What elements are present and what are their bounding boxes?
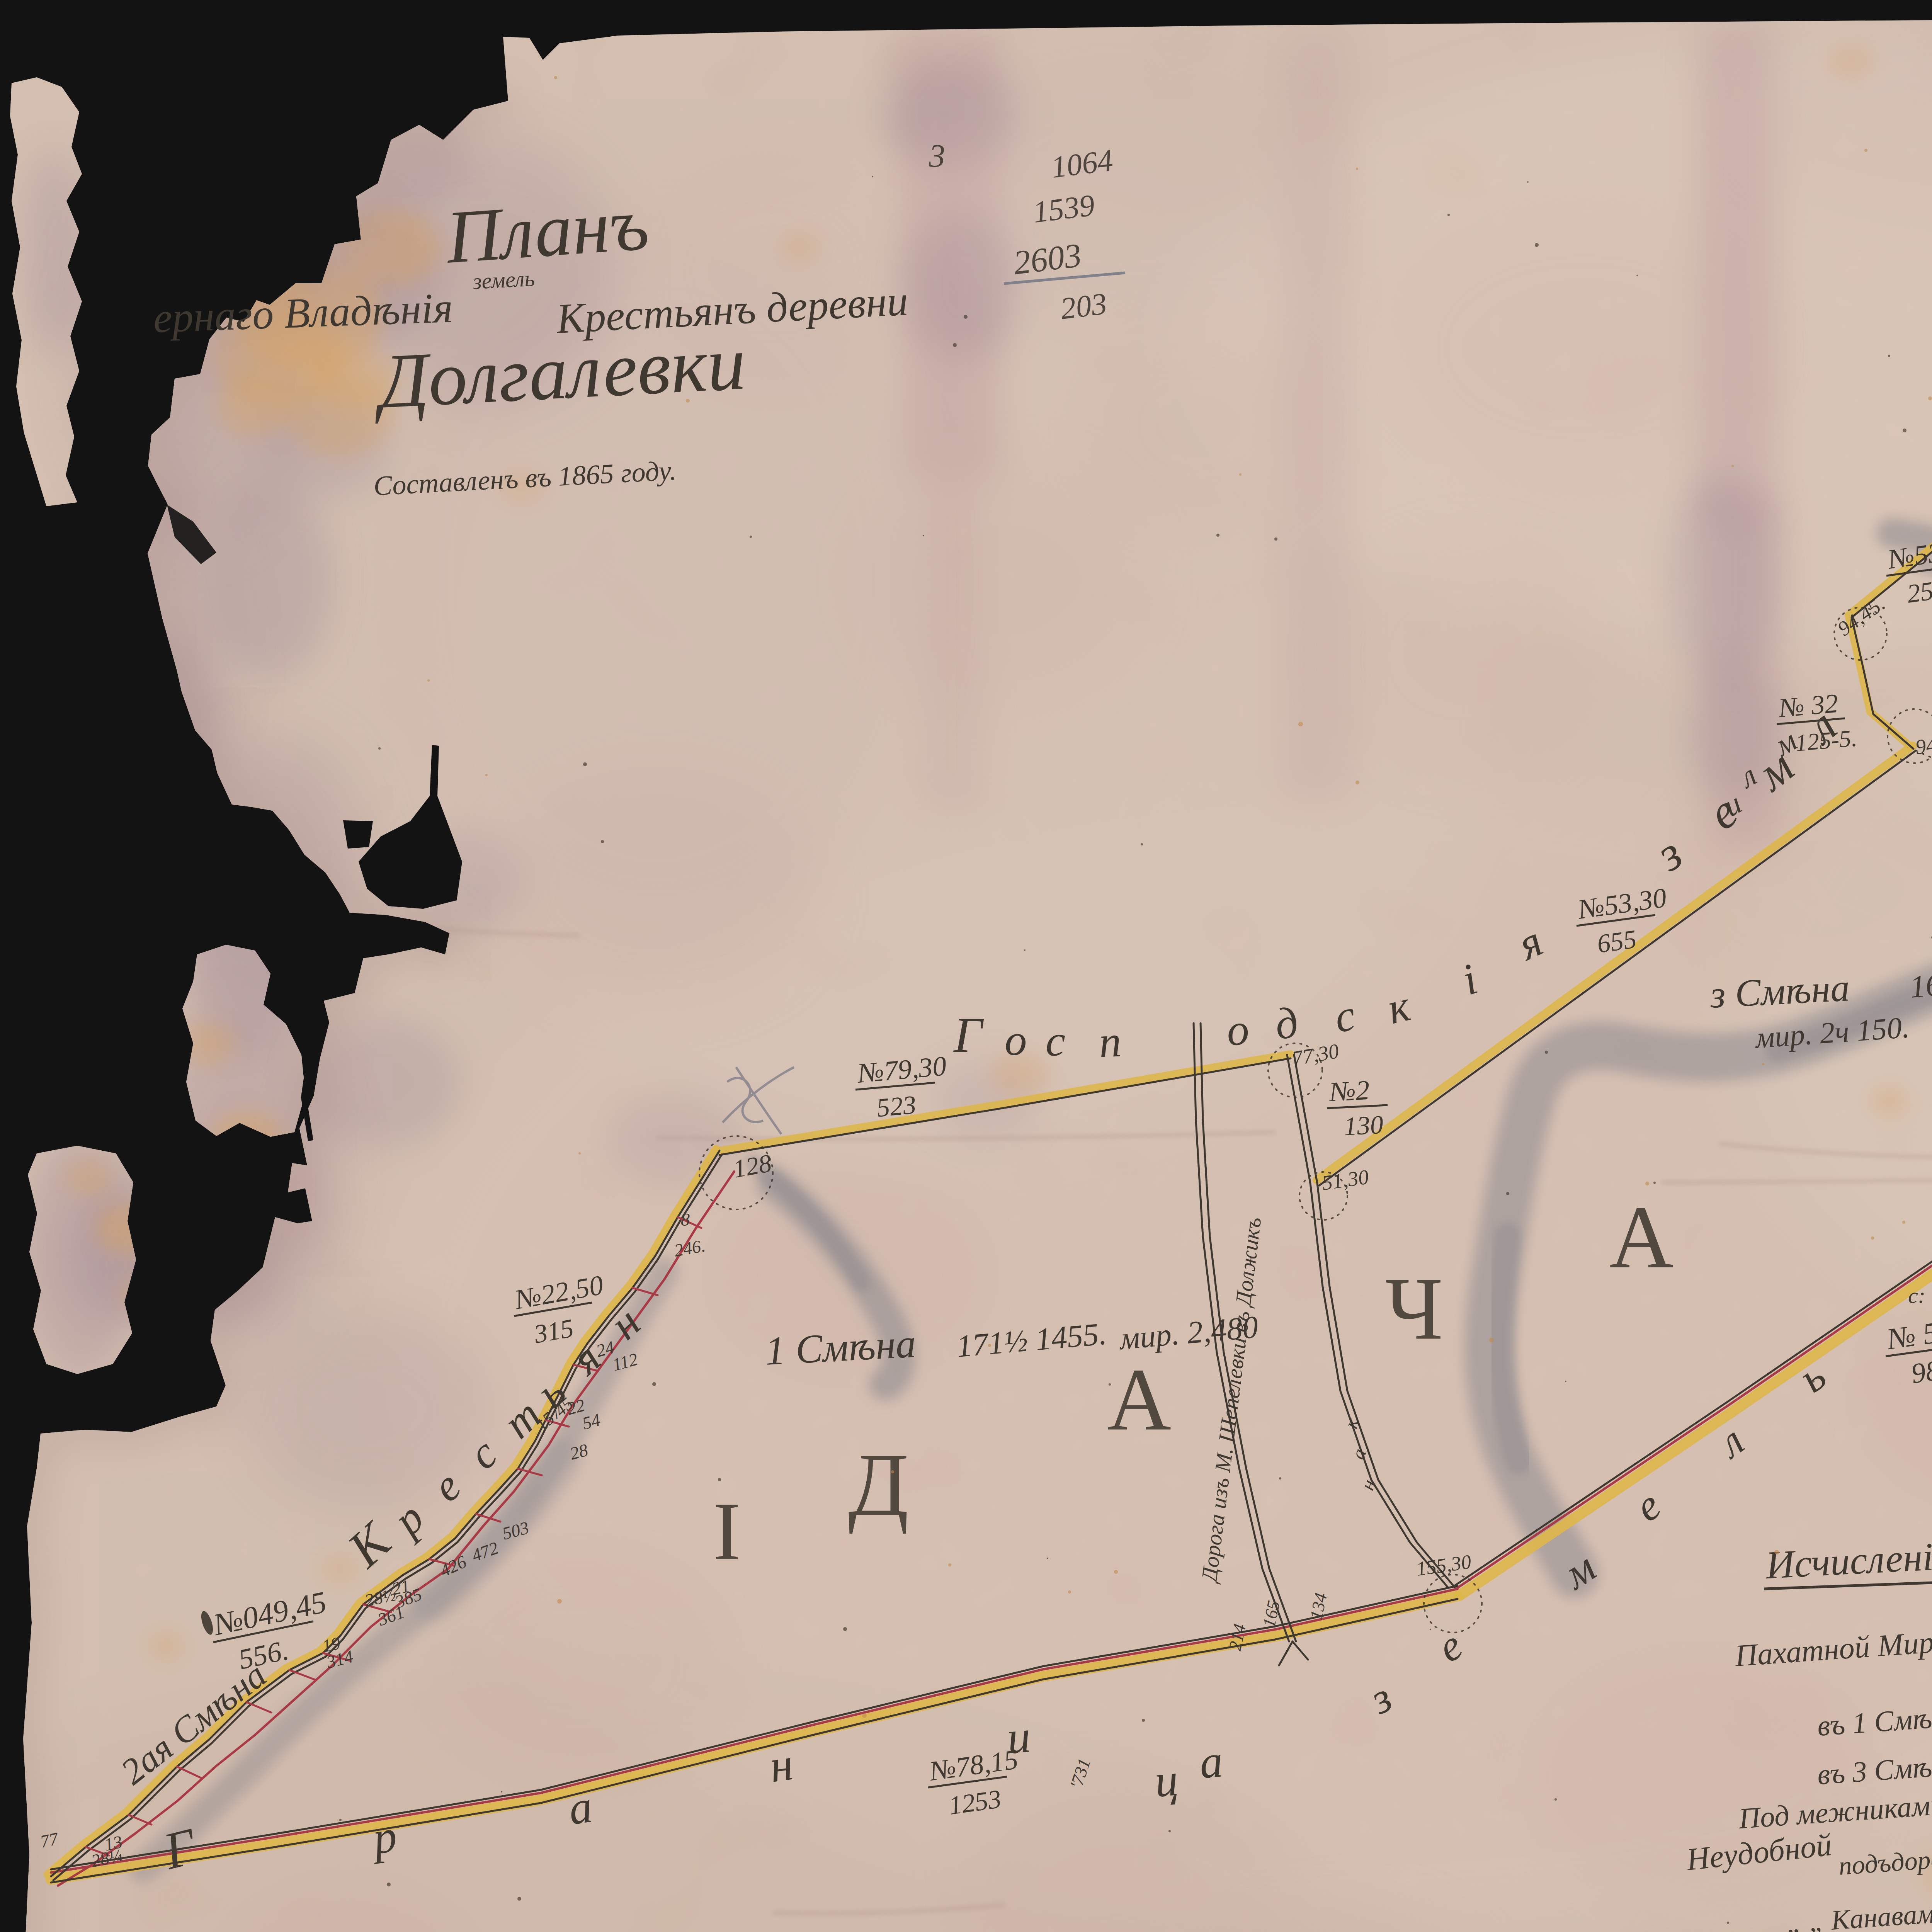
svg-text:о: о xyxy=(1225,1004,1251,1055)
svg-text:ц: ц xyxy=(1153,1753,1180,1807)
svg-text:989: 989 xyxy=(1909,1352,1932,1389)
svg-text:130: 130 xyxy=(1343,1110,1384,1141)
svg-text:І: І xyxy=(713,1485,741,1577)
svg-text:п: п xyxy=(1098,1017,1122,1067)
svg-text:а: а xyxy=(1197,1735,1225,1788)
svg-text:Планъ: Планъ xyxy=(443,182,651,279)
svg-text:№2: №2 xyxy=(1328,1075,1371,1107)
svg-text:3: 3 xyxy=(929,138,945,174)
svg-text:Ч: Ч xyxy=(1385,1260,1443,1358)
svg-text:Г: Г xyxy=(953,1007,984,1063)
svg-text:250: 250 xyxy=(1905,574,1932,608)
svg-text:з Смѣна: з Смѣна xyxy=(1708,966,1850,1016)
svg-text:с: с xyxy=(1046,1016,1065,1065)
svg-text:8: 8 xyxy=(681,1210,690,1230)
svg-text:203: 203 xyxy=(1058,286,1109,326)
svg-text:и: и xyxy=(1005,1710,1032,1764)
svg-text:655: 655 xyxy=(1595,924,1639,958)
svg-text:523: 523 xyxy=(876,1090,917,1122)
svg-text:о: о xyxy=(1005,1015,1027,1065)
svg-text:Д: Д xyxy=(848,1435,909,1534)
svg-text:А: А xyxy=(1609,1188,1673,1287)
svg-text:с:: с: xyxy=(1908,1283,1925,1308)
svg-text:земель: земель xyxy=(472,266,535,294)
svg-text:1 Смѣна: 1 Смѣна xyxy=(764,1321,917,1374)
svg-text:А: А xyxy=(1107,1350,1171,1449)
